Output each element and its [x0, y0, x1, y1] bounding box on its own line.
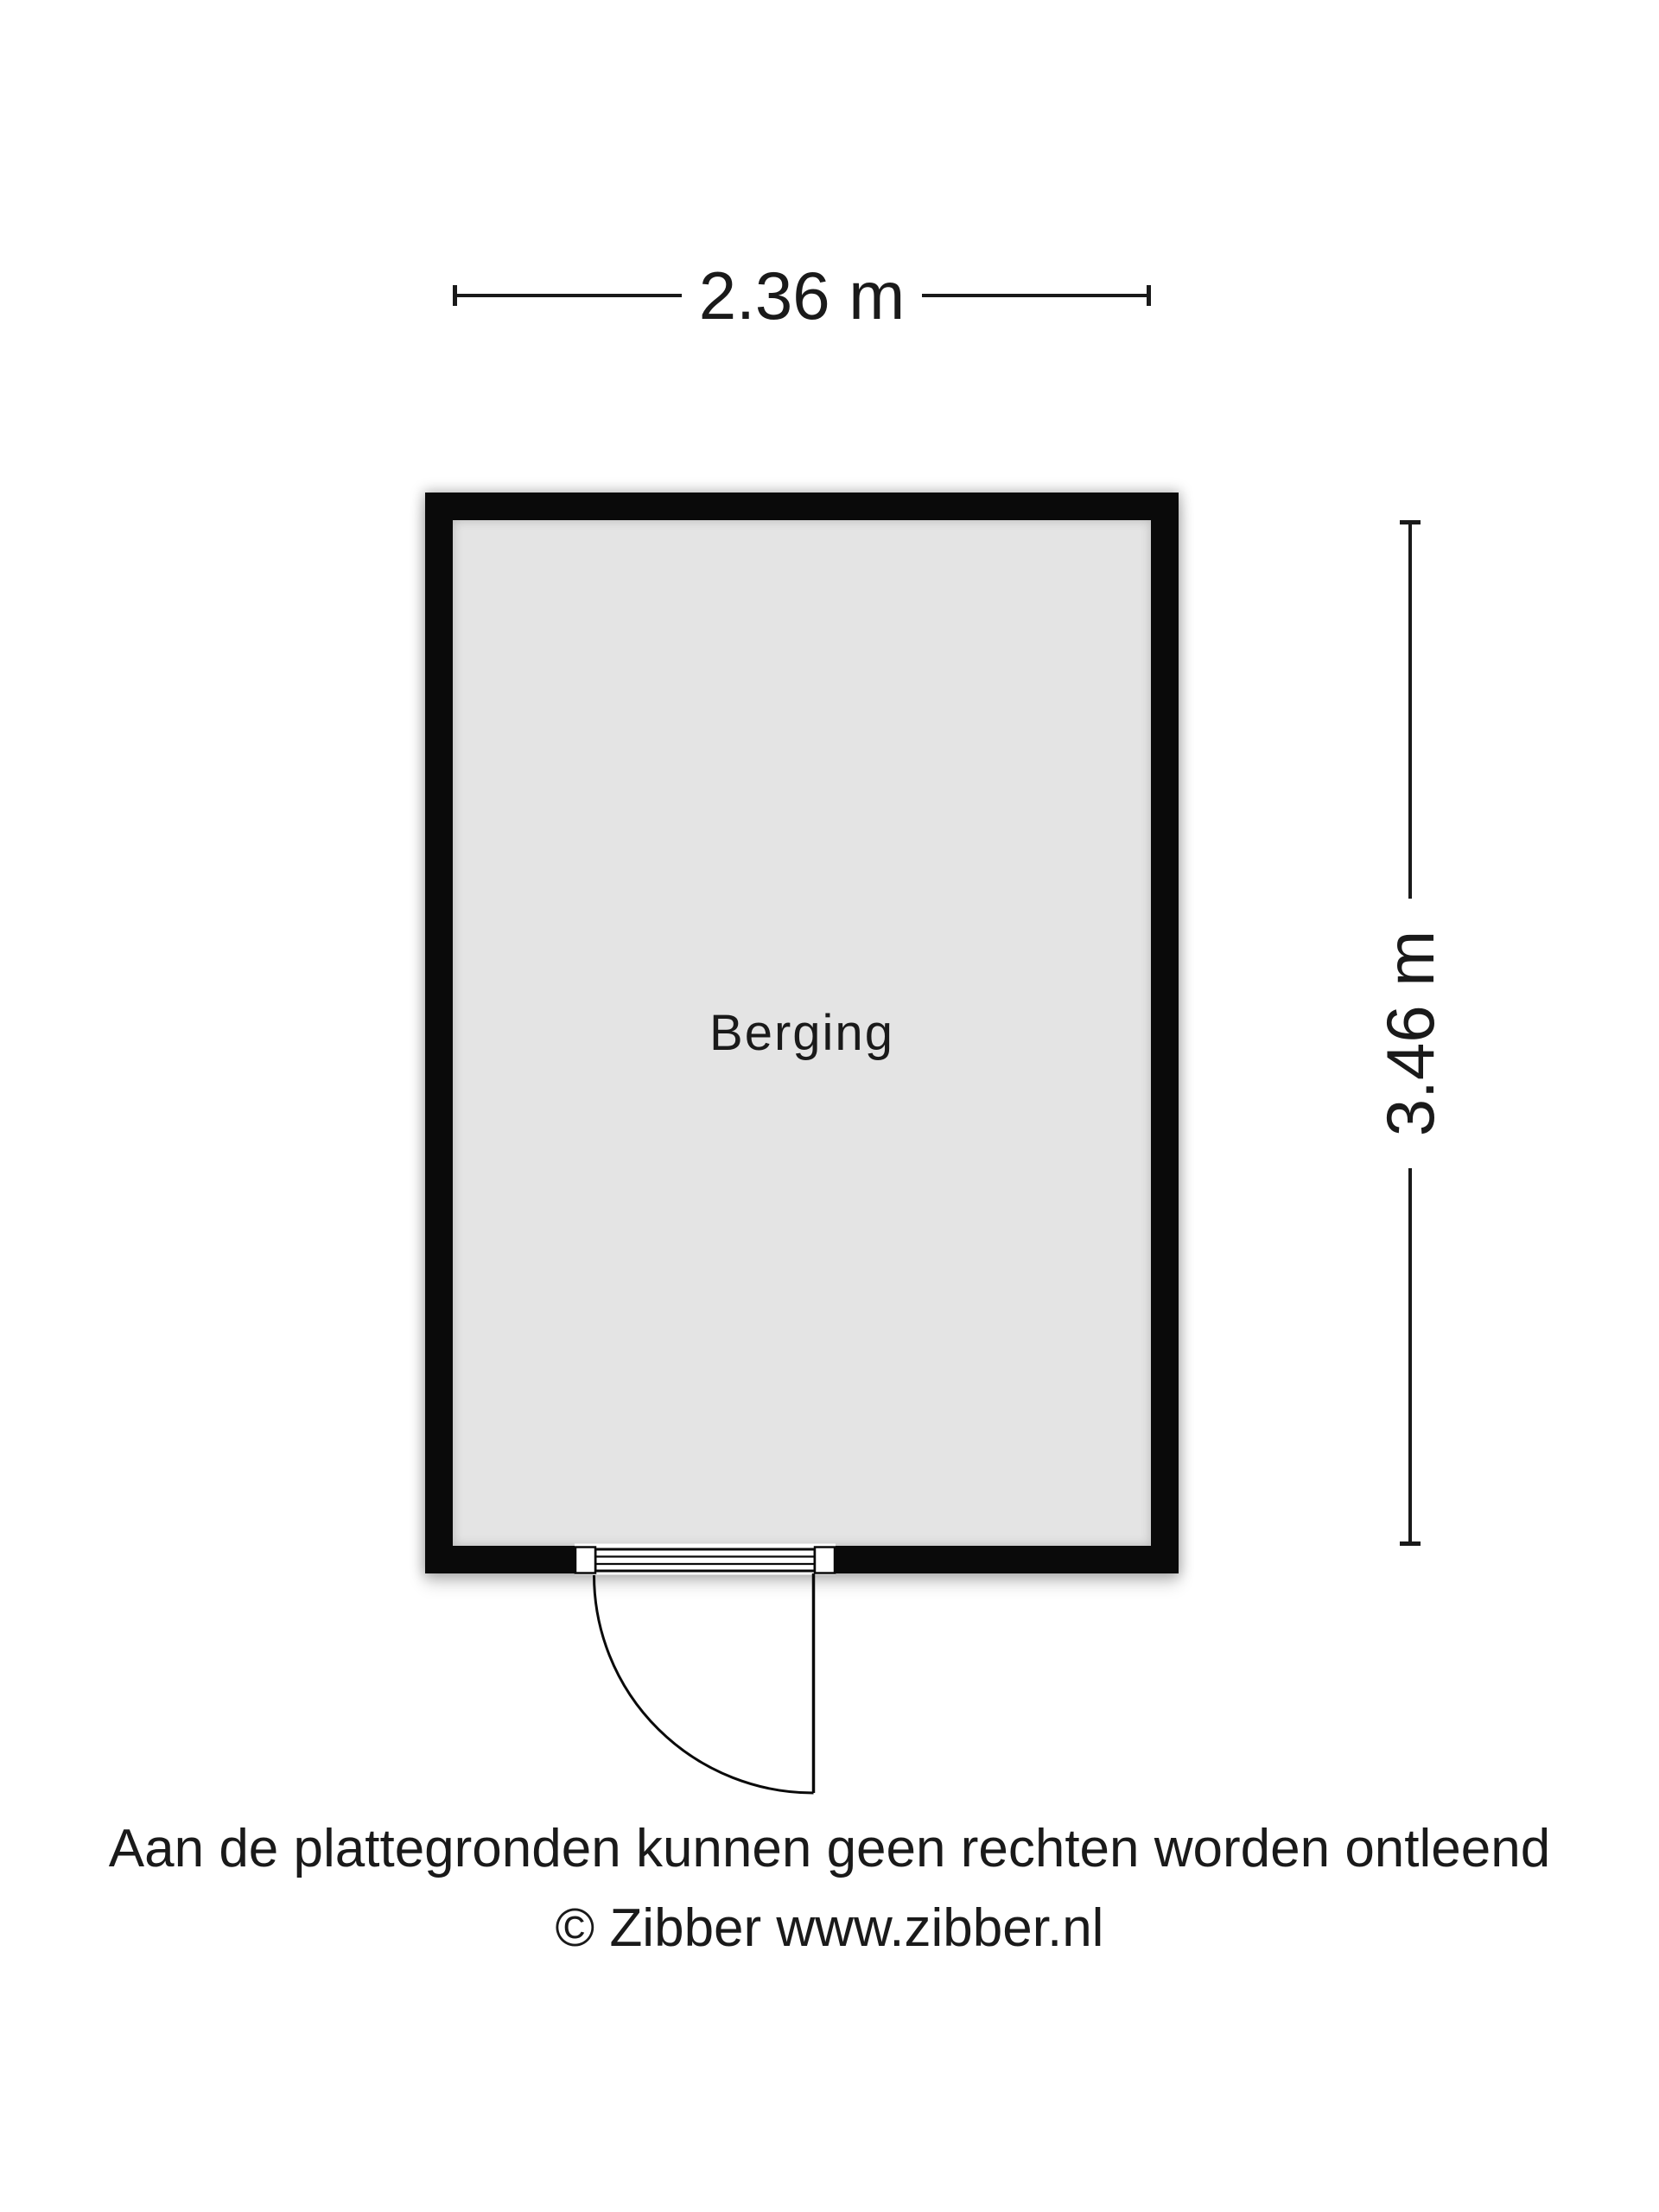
- dimension-line-segment: [1408, 524, 1412, 899]
- dimension-right: 3.46 m: [1358, 520, 1462, 1546]
- floor-plan-canvas: 2.36 m Berging 3.46 m Aan de platt: [0, 0, 1659, 2212]
- door-jamb-right: [815, 1548, 835, 1573]
- door-jamb-left: [575, 1548, 595, 1573]
- dimension-line-segment: [1408, 1168, 1412, 1542]
- dimension-height-label: 3.46 m: [1376, 930, 1444, 1135]
- door-threshold: [595, 1549, 815, 1571]
- dimension-height-label-box: 3.46 m: [1358, 899, 1462, 1168]
- disclaimer-line1: Aan de plattegronden kunnen geen rechten…: [0, 1809, 1659, 1889]
- dimension-tick-bottom: [1400, 1541, 1421, 1546]
- disclaimer-line2: © Zibber www.zibber.nl: [0, 1889, 1659, 1968]
- disclaimer: Aan de plattegronden kunnen geen rechten…: [0, 1809, 1659, 1968]
- door-swing-arc: [594, 1575, 814, 1793]
